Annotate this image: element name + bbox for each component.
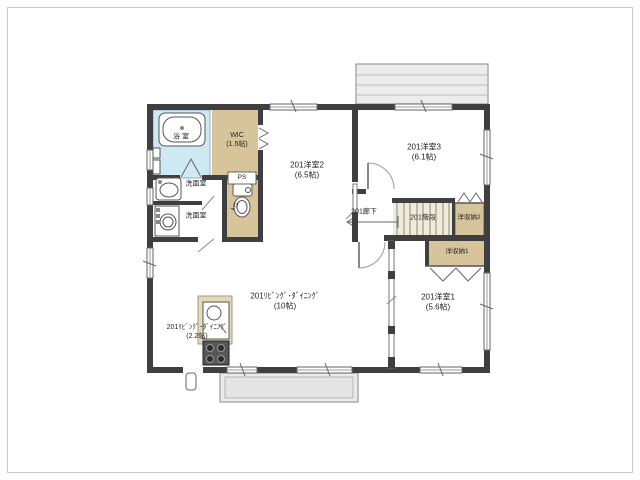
window bbox=[147, 188, 153, 205]
room-label: 201ﾘﾋﾞﾝｸﾞ･ﾀﾞｲﾆﾝｸﾞ bbox=[167, 324, 228, 331]
balcony-bottom bbox=[220, 373, 358, 402]
sliding-door-tick bbox=[202, 196, 214, 210]
label-washroom-upper: 洗面室 bbox=[186, 179, 207, 188]
room-size: (6.1帖) bbox=[407, 153, 441, 163]
wall-segment bbox=[147, 104, 153, 150]
wall-segment bbox=[462, 367, 490, 373]
wall-segment bbox=[484, 185, 490, 273]
room-size: (1.5帖) bbox=[226, 140, 247, 149]
wic-door-chevron bbox=[259, 139, 268, 149]
sliding-partition bbox=[387, 241, 396, 368]
room-size: (6.5帖) bbox=[290, 171, 324, 181]
wall-segment bbox=[147, 237, 198, 242]
closet1-door-chevron bbox=[456, 268, 481, 281]
wic-door-chevron bbox=[259, 128, 268, 138]
label-kitchen-area: 201ﾘﾋﾞﾝｸﾞ･ﾀﾞｲﾆﾝｸﾞ (2.2帖) bbox=[167, 323, 228, 341]
window bbox=[480, 273, 493, 350]
door-arc bbox=[368, 163, 394, 189]
wall-segment bbox=[388, 241, 395, 249]
room-label: 201洋室3 bbox=[407, 143, 441, 152]
door-arc bbox=[359, 242, 385, 268]
entrance-door-leaf bbox=[186, 373, 196, 390]
wall-segment bbox=[147, 278, 153, 373]
wall-segment bbox=[226, 237, 262, 242]
wall-segment bbox=[388, 271, 395, 279]
label-bath: 浴室 bbox=[173, 132, 191, 141]
room-label: 201廊下 bbox=[351, 208, 377, 215]
wall-segment bbox=[352, 104, 358, 182]
wall-segment bbox=[352, 367, 420, 373]
bath-fixture bbox=[153, 148, 160, 158]
room-label: 浴室 bbox=[173, 133, 191, 140]
wall-segment bbox=[388, 326, 395, 334]
room-size: (10帖) bbox=[250, 302, 319, 312]
washing-machine-icon bbox=[155, 206, 179, 236]
label-bedroom1: 201洋室1 (5.6帖) bbox=[421, 293, 455, 314]
balcony-top-deck bbox=[356, 64, 488, 104]
wall-segment bbox=[257, 367, 297, 373]
washbasin-icon bbox=[156, 178, 181, 200]
stove-icon bbox=[203, 341, 229, 365]
wall-segment bbox=[258, 104, 263, 125]
label-closet2: 洋収納2 bbox=[457, 214, 480, 222]
wall-segment bbox=[147, 367, 183, 373]
balcony-top bbox=[356, 64, 488, 104]
room-label: 201洋室1 bbox=[421, 293, 455, 302]
window bbox=[480, 130, 493, 185]
room-label: 洋収納1 bbox=[445, 248, 468, 255]
closet2-door-chevron bbox=[470, 193, 482, 202]
room-label: WIC bbox=[230, 132, 244, 139]
wall-segment bbox=[147, 104, 270, 110]
room-label: 201洋室2 bbox=[290, 161, 324, 170]
wall-segment bbox=[392, 198, 455, 203]
wall-segment bbox=[153, 201, 202, 205]
wall-segment bbox=[203, 367, 227, 373]
label-stairs: 201階段 bbox=[410, 213, 436, 222]
room-label: PS bbox=[238, 174, 247, 181]
label-bedroom2: 201洋室2 (6.5帖) bbox=[290, 161, 324, 182]
closet1-door-chevron bbox=[430, 268, 456, 281]
room-label: 201階段 bbox=[410, 214, 436, 221]
window bbox=[143, 248, 156, 278]
room-size: (5.6帖) bbox=[421, 303, 455, 313]
floor-plan-page: 浴室 WIC (1.5帖) 洗面室 洗面室 PS ﾄｲﾚ 201洋室2 (6.5… bbox=[0, 0, 640, 480]
wall-segment bbox=[384, 235, 490, 241]
sliding-door-track bbox=[389, 241, 394, 368]
label-washroom-lower: 洗面室 bbox=[186, 211, 207, 220]
door-swing bbox=[368, 163, 394, 189]
room-label: 洗面室 bbox=[186, 212, 207, 219]
window bbox=[270, 100, 317, 112]
wall-segment bbox=[388, 357, 395, 368]
balcony-bottom-inner bbox=[225, 377, 353, 398]
sliding-door-tick bbox=[198, 239, 214, 252]
room-size: (2.2帖) bbox=[167, 332, 228, 341]
floor-plan-drawing bbox=[0, 0, 640, 480]
wall-segment bbox=[484, 104, 490, 130]
room-label: 201ﾘﾋﾞﾝｸﾞ･ﾀﾞｲﾆﾝｸﾞ bbox=[250, 292, 319, 301]
wall-segment bbox=[425, 240, 429, 266]
wall-segment bbox=[258, 150, 263, 242]
bath-fixture bbox=[153, 160, 160, 174]
label-living-dining: 201ﾘﾋﾞﾝｸﾞ･ﾀﾞｲﾆﾝｸﾞ (10帖) bbox=[250, 292, 319, 313]
window bbox=[147, 150, 153, 170]
wall-segment bbox=[452, 203, 455, 237]
label-closet1: 洋収納1 bbox=[445, 248, 468, 256]
label-hallway: 201廊下 bbox=[351, 207, 377, 216]
room-label: 洗面室 bbox=[186, 180, 207, 187]
window bbox=[420, 363, 462, 376]
label-wic: WIC (1.5帖) bbox=[226, 131, 247, 149]
wall-segment bbox=[222, 178, 227, 242]
label-bedroom3: 201洋室3 (6.1帖) bbox=[407, 143, 441, 164]
room-label: 洋収納2 bbox=[457, 214, 480, 221]
label-pipe-space: PS bbox=[238, 174, 247, 182]
closet2-door-chevron bbox=[458, 193, 470, 202]
door-swing bbox=[359, 242, 385, 268]
